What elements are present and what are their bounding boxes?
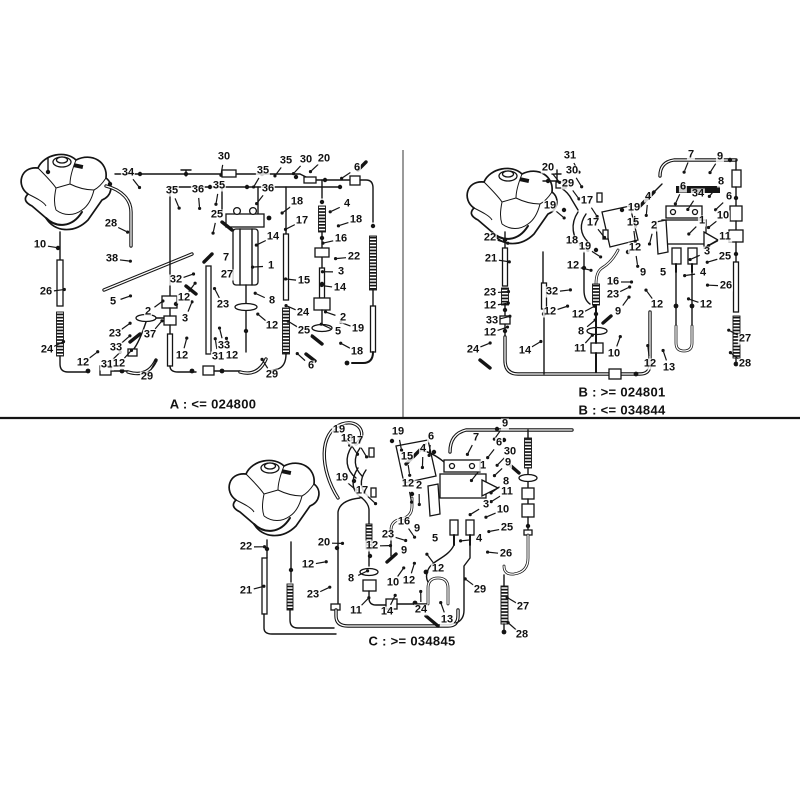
part-number-callout: 34 [691,189,705,200]
part-number-callout: 22 [347,252,361,263]
part-number-callout: 23 [483,288,497,299]
part-number-callout: 36 [191,185,205,196]
part-number-callout: 28 [738,359,752,370]
part-number-callout: 19 [351,324,365,335]
parts-diagram-artwork [0,0,800,800]
fuel-tank-C [229,460,319,535]
section-caption: B : <= 034844 [578,403,665,418]
part-number-callout: 19 [578,242,592,253]
part-number-callout: 4 [343,199,351,210]
part-number-callout: 12 [112,359,126,370]
part-number-callout: 20 [541,163,555,174]
part-number-callout: 10 [607,349,621,360]
part-number-callout: 24 [466,345,480,356]
part-number-callout: 2 [415,481,423,492]
part-number-callout: 12 [225,351,239,362]
part-number-callout: 17 [580,196,594,207]
part-number-callout: 12 [483,301,497,312]
part-number-callout: 19 [543,201,557,212]
part-number-callout: 18 [290,197,304,208]
part-number-callout: 9 [716,152,724,163]
part-number-callout: 29 [140,372,154,383]
part-number-callout: 5 [109,297,117,308]
part-number-callout: 11 [573,344,587,355]
part-number-callout: 2 [650,221,658,232]
part-number-callout: 6 [353,163,361,174]
part-number-callout: 10 [496,505,510,516]
part-number-callout: 4 [475,534,483,545]
part-number-callout: 30 [299,155,313,166]
part-number-callout: 35 [212,181,226,192]
parts-diagram-page: 3035353020635363536342810262438251817164… [0,0,800,800]
part-number-callout: 16 [606,277,620,288]
part-number-callout: 23 [306,590,320,601]
part-number-callout: 5 [431,534,439,545]
part-number-callout: 2 [144,307,152,318]
part-number-callout: 28 [515,630,529,641]
part-number-callout: 26 [719,281,733,292]
part-number-callout: 25 [500,523,514,534]
part-number-callout: 27 [220,270,234,281]
part-number-callout: 15 [626,218,640,229]
part-number-callout: 12 [483,328,497,339]
part-number-callout: 23 [216,300,230,311]
part-number-callout: 14 [518,346,532,357]
part-number-callout: 6 [679,182,687,193]
part-number-callout: 32 [545,287,559,298]
part-number-callout: 18 [350,347,364,358]
part-number-callout: 19 [335,473,349,484]
part-number-callout: 12 [431,564,445,575]
part-number-callout: 15 [400,452,414,463]
part-number-callout: 11 [349,606,363,617]
part-number-callout: 9 [639,268,647,279]
part-number-callout: 6 [427,432,435,443]
part-number-callout: 27 [516,602,530,613]
part-number-callout: 29 [265,370,279,381]
part-number-callout: 19 [627,203,641,214]
part-number-callout: 10 [386,578,400,589]
part-number-callout: 15 [297,276,311,287]
part-number-callout: 8 [577,327,585,338]
part-number-callout: 12 [76,358,90,369]
part-number-callout: 12 [177,293,191,304]
part-number-callout: 6 [495,438,503,449]
part-number-callout: 12 [301,560,315,571]
part-number-callout: 9 [501,419,509,430]
part-number-callout: 8 [268,296,276,307]
part-number-callout: 33 [109,343,123,354]
part-number-callout: 27 [738,334,752,345]
part-number-callout: 9 [400,546,408,557]
part-number-callout: 7 [472,433,480,444]
part-number-callout: 25 [718,252,732,263]
part-number-callout: 1 [267,261,275,272]
part-number-callout: 23 [606,290,620,301]
part-number-callout: 24 [414,605,428,616]
part-number-callout: 3 [181,314,189,325]
part-number-callout: 5 [659,268,667,279]
part-number-callout: 17 [295,216,309,227]
part-number-callout: 35 [256,166,270,177]
part-number-callout: 16 [334,234,348,245]
part-number-callout: 12 [699,300,713,311]
section-caption: B : >= 024801 [578,385,665,400]
part-number-callout: 3 [337,267,345,278]
part-number-callout: 12 [543,307,557,318]
part-number-callout: 2 [339,313,347,324]
section-caption: A : <= 024800 [170,397,257,412]
part-number-callout: 22 [483,233,497,244]
part-number-callout: 7 [687,150,695,161]
part-number-callout: 24 [40,345,54,356]
part-number-callout: 12 [265,321,279,332]
part-number-callout: 14 [266,232,280,243]
part-number-callout: 9 [614,307,622,318]
part-number-callout: 11 [500,487,514,498]
part-number-callout: 19 [391,427,405,438]
part-number-callout: 20 [317,154,331,165]
part-number-callout: 26 [499,549,513,560]
part-number-callout: 5 [334,327,342,338]
part-number-callout: 12 [566,261,580,272]
part-number-callout: 6 [725,192,733,203]
part-number-callout: 23 [381,530,395,541]
part-number-callout: 18 [349,215,363,226]
part-number-callout: 37 [143,330,157,341]
part-number-callout: 3 [703,247,711,258]
part-number-callout: 17 [355,486,369,497]
part-number-callout: 16 [397,517,411,528]
part-number-callout: 31 [563,151,577,162]
part-number-callout: 10 [33,240,47,251]
fuel-tank-A [21,154,111,229]
part-number-callout: 7 [222,253,230,264]
part-number-callout: 29 [561,179,575,190]
part-number-callout: 6 [307,361,315,372]
part-number-callout: 31 [211,352,225,363]
part-number-callout: 10 [716,211,730,222]
part-number-callout: 4 [644,192,652,203]
part-number-callout: 36 [261,184,275,195]
part-number-callout: 8 [717,177,725,188]
part-number-callout: 4 [419,444,427,455]
part-number-callout: 20 [317,538,331,549]
part-number-callout: 28 [104,219,118,230]
part-number-callout: 21 [239,586,253,597]
part-number-callout: 9 [413,524,421,535]
part-number-callout: 25 [210,210,224,221]
part-number-callout: 23 [108,329,122,340]
part-number-callout: 1 [479,461,487,472]
part-number-callout: 14 [380,607,394,618]
part-number-callout: 4 [699,268,707,279]
part-number-callout: 13 [662,363,676,374]
section-caption: C : >= 034845 [368,634,455,649]
part-number-callout: 26 [39,287,53,298]
part-number-callout: 35 [279,156,293,167]
part-number-callout: 14 [333,283,347,294]
part-number-callout: 35 [165,186,179,197]
part-number-callout: 8 [347,574,355,585]
part-number-callout: 17 [586,218,600,229]
part-number-callout: 12 [643,359,657,370]
part-number-callout: 32 [169,275,183,286]
part-number-callout: 1 [698,216,706,227]
part-number-callout: 34 [121,168,135,179]
part-number-callout: 12 [365,541,379,552]
part-number-callout: 3 [482,500,490,511]
part-number-callout: 22 [239,542,253,553]
part-number-callout: 30 [217,152,231,163]
part-number-callout: 12 [650,300,664,311]
part-number-callout: 13 [440,615,454,626]
part-number-callout: 25 [297,326,311,337]
part-number-callout: 12 [628,243,642,254]
part-number-callout: 38 [105,254,119,265]
part-number-callout: 12 [571,310,585,321]
part-number-callout: 24 [296,308,310,319]
part-number-callout: 17 [350,436,364,447]
part-number-callout: 9 [504,458,512,469]
part-number-callout: 12 [175,351,189,362]
part-number-callout: 21 [484,254,498,265]
part-number-callout: 29 [473,585,487,596]
part-number-callout: 12 [401,479,415,490]
part-number-callout: 33 [485,316,499,327]
part-number-callout: 11 [718,232,732,243]
part-number-callout: 30 [565,166,579,177]
part-number-callout: 12 [402,576,416,587]
